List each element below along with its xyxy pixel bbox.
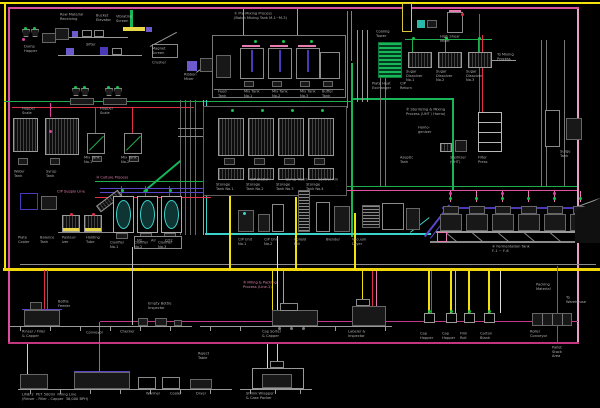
dump-hopper-1 (22, 29, 30, 37)
gray-filler-drop (132, 247, 133, 325)
pink-hopper-drop (455, 271, 456, 313)
purple-bank-pipe (442, 207, 590, 209)
fermentation-top (443, 206, 459, 214)
packer-hopper (270, 361, 284, 368)
storage-tank (248, 118, 274, 156)
premix-pump (300, 81, 310, 87)
equipment-label: Conveyor (86, 331, 103, 335)
equipment-label: Pasteur- izer (62, 236, 77, 244)
yellow-capper-drop (272, 271, 273, 311)
cip-unit-1 (238, 210, 254, 232)
equipment-label: Water Tank (14, 170, 25, 178)
clarifier-pump (116, 233, 128, 239)
utility-risers (367, 30, 368, 102)
hx-drop-2 (385, 78, 386, 186)
equipment-label: Plate Heat Exchanger (372, 82, 391, 90)
bank-platform (436, 231, 586, 233)
purple-roller (66, 48, 74, 55)
conveyor-item-1 (138, 318, 148, 326)
valve-dot (74, 86, 77, 89)
white-packer-drop (267, 344, 268, 370)
yellow-riser-2 (295, 197, 297, 270)
equipment-label: Cap Sorter & Capper (262, 330, 281, 338)
equipment-label: Reject Table (198, 352, 209, 360)
balance-tank (41, 196, 57, 210)
feeder-box-2 (55, 28, 69, 40)
utility-yellow-band (3, 268, 600, 271)
hx-drop-1 (380, 78, 381, 186)
conveyor-2-legs-b (335, 327, 336, 331)
cip-tank (272, 204, 284, 232)
scale-base-2 (103, 98, 127, 105)
yellow-screen (123, 27, 145, 31)
equipment-label: Dryer (196, 392, 206, 396)
equipment-label: Mix Tank No.1 (244, 90, 260, 98)
equipment-label: Cooling Tower (376, 30, 389, 38)
fermentation-tank (518, 214, 540, 231)
clarifier-vessel (161, 196, 182, 233)
filter-shelves (479, 142, 501, 143)
conveyor-3 (18, 389, 232, 390)
pasteurizer-base (63, 228, 79, 231)
filler-bowl (30, 302, 42, 310)
equipment-label: Colloid Mill (294, 238, 306, 246)
holding-base (85, 228, 101, 231)
equipment-label: To Warehouse (566, 296, 586, 304)
border-magenta-top (8, 7, 579, 9)
valve-dot (83, 86, 86, 89)
equipment-label: CIP Supply Line (57, 190, 85, 194)
dissolver-tank (408, 52, 432, 68)
equipment-label: High Shear Mixer (440, 35, 460, 43)
clarifier-oval (140, 200, 155, 229)
cap-hopper (424, 313, 435, 323)
equipment-label: Control Rm (318, 178, 338, 182)
right-riser-3 (564, 40, 565, 186)
equipment-label: ④ Fermentation Tank F-1 ~ F-6 (492, 245, 530, 253)
aseptic-tank (440, 143, 452, 152)
equipment-label: CIP Unit No.1 (238, 238, 252, 246)
valve-dot (461, 13, 464, 16)
valve-dot (70, 213, 73, 216)
valve-dot (449, 197, 452, 200)
fermentation-tank (544, 214, 566, 231)
green-thick-v1 (351, 63, 353, 237)
equipment-label: LINE-2 PET 500ml Filling Line (Rinser - … (22, 393, 88, 401)
premix-cap (298, 45, 316, 47)
premix-pump (272, 81, 282, 87)
fermentation-tank (466, 214, 488, 231)
feed-line-2 (58, 55, 142, 56)
clarifier-vessel (137, 196, 158, 233)
wheel (302, 327, 305, 330)
equipment-label: Syrup Room (286, 178, 308, 182)
conveyor-2-legs-a (210, 327, 211, 331)
stock-hopper (484, 313, 495, 323)
equipment-label: ⑤ Filling & Packing Process (Line-1) (243, 281, 277, 289)
white-stock-drop (500, 271, 501, 313)
feeder-box-1 (42, 33, 56, 43)
labeler-head (356, 299, 370, 306)
equipment-label: Sifter (86, 43, 96, 47)
valve-dot (501, 197, 504, 200)
red-filler-drop-1 (44, 270, 45, 312)
gray-risers (190, 100, 191, 235)
scale-hopper-1 (72, 88, 80, 96)
equipment-label: Warmer (146, 392, 160, 396)
pink-discharge-box (437, 232, 447, 242)
equipment-label: CIP Return (400, 82, 412, 90)
gray-tie-2 (178, 136, 204, 137)
purple-culture-line-1 (100, 188, 205, 189)
valve-dot (450, 310, 453, 313)
valve-dot (412, 37, 415, 40)
equipment-label: Mix Tank No.3 (300, 90, 316, 98)
dissolver-tank (438, 52, 462, 68)
equipment-label: Mix Tank No.2 (272, 90, 288, 98)
valve-dot (145, 189, 148, 192)
blender-drive (334, 206, 350, 232)
equipment-label: ① Pre-Mixing Process (Batch Mixing Tank … (234, 12, 287, 20)
yellow-line2-drop (27, 344, 28, 375)
dump-hopper-2 (31, 29, 39, 37)
right-risers (541, 40, 542, 186)
equipment-label: Pallet Stock Area (552, 346, 562, 358)
equipment-label: Hopper Scale (100, 107, 113, 115)
conveyor-3-legs (210, 390, 211, 394)
conveyor-2-legs-a (240, 327, 241, 331)
white-capper-drop (277, 236, 278, 311)
conveyor-1-legs (80, 327, 81, 331)
cooling-tower-fill (378, 42, 402, 78)
process-flow-diagram: Raw Material ReceivingBucket ElevatorVib… (0, 0, 600, 408)
scale-hopper-3 (105, 88, 113, 96)
filter-shelves (479, 122, 501, 123)
equipment-label: Filter Press (478, 156, 487, 164)
equipment-label: ③ Culture Process (96, 176, 128, 180)
valve-dot (478, 37, 481, 40)
valve-dot (488, 310, 491, 313)
mill-column (298, 190, 310, 232)
buffer-tank (320, 52, 340, 79)
green-dissolver-drops (412, 39, 413, 52)
valve-dot (428, 310, 431, 313)
equipment-label: Clarifier No.2 (134, 241, 148, 249)
equipment-label: Storage Tank No.4 (306, 183, 324, 191)
valve-dot (231, 109, 234, 112)
blender-tank (316, 202, 330, 232)
right-cabinet (566, 118, 582, 140)
equipment-label: Dump Hopper (24, 45, 37, 53)
premix-agitator (279, 50, 281, 72)
roller-dividers (552, 314, 553, 325)
storage-tank (218, 118, 244, 156)
clarifier-vessel (113, 196, 134, 233)
equipment-label: Buffer Tank (322, 90, 333, 98)
equipment-label: ② Sterilizing & Mixing Process (UHT / Ho… (406, 108, 445, 116)
equipment-label: Carton Blank (480, 332, 492, 340)
equipment-label: Mix Tank No.2 (121, 156, 137, 164)
premix-cap (270, 45, 288, 47)
magenta-mid-line (100, 321, 578, 322)
valve-dot (321, 109, 324, 112)
equipment-label: Labeler & Inspector (348, 330, 365, 338)
syrup-tank (45, 118, 79, 155)
equipment-label: CIP Station (250, 178, 270, 182)
fermentation-tank (492, 214, 514, 231)
wheel (290, 327, 293, 330)
dissolver-tank (468, 52, 492, 68)
pump-a (18, 158, 28, 165)
screen-box-2 (94, 30, 104, 37)
water-tank (13, 118, 38, 152)
conveyor-1-legs (50, 327, 51, 331)
valve-dot (501, 192, 504, 195)
stock-hopper (464, 313, 475, 323)
equipment-label: To Mixing Process (497, 53, 514, 61)
conveyor-1-legs (110, 327, 111, 331)
conveyor-item-2 (155, 318, 167, 326)
storage-tank (278, 118, 304, 156)
equipment-label: Ribbon Mixer (184, 73, 197, 81)
equipment-label: Vibrating Screen (116, 15, 132, 23)
conveyor-1-legs (170, 327, 171, 331)
premix-pump (244, 81, 254, 87)
equipment-label: Empty Bottle Inspector (148, 302, 171, 310)
valve-dot (553, 197, 556, 200)
equipment-label: Checker (120, 330, 135, 334)
gray-header-line (20, 264, 596, 265)
equipment-label: Cap Hopper (442, 332, 455, 340)
equipment-label: Feed Tank (218, 90, 227, 98)
magenta-line2-drop (99, 322, 100, 372)
green-thick-v2 (452, 100, 454, 190)
valve-dot (49, 130, 52, 133)
scale-base-1 (70, 98, 94, 105)
scale-hopper-4 (114, 88, 122, 96)
magenta-tank-drop (50, 103, 51, 117)
conveyor-4-legs (300, 390, 301, 394)
valve-dot (22, 38, 25, 41)
labeler-machine (352, 306, 386, 326)
pump-b (50, 158, 60, 165)
equipment-label: Rinser / Filler & Capper (22, 330, 45, 338)
purple-valve (146, 27, 152, 32)
border-magenta-left (8, 9, 10, 344)
teal-pump (417, 20, 425, 28)
equipment-label: Storage Tank No.1 (216, 183, 234, 191)
storage-cylinder (218, 168, 244, 180)
conveyor-item-3 (174, 320, 182, 326)
equipment-label: Mix Tank No.1 (84, 156, 100, 164)
equipment-label: Roller Conveyor (530, 330, 547, 338)
dryer-box (190, 379, 212, 389)
shear-mixer-cap (449, 10, 461, 12)
valve-dot (310, 40, 313, 43)
conveyor-2 (200, 326, 392, 327)
conveyor-1-legs (20, 327, 21, 331)
valve-dot (92, 213, 95, 216)
warmer-box (138, 377, 156, 389)
equipment-label: Packing Material (536, 283, 551, 291)
valve-dot (475, 197, 478, 200)
equipment-label: Crusher (152, 61, 166, 65)
gray-tie-1 (178, 128, 204, 129)
packer-body (262, 374, 292, 388)
equipment-label: Plate Cooler (18, 236, 30, 244)
valve-dot (107, 86, 110, 89)
cip-unit-2 (258, 214, 270, 232)
valve-dot (254, 40, 257, 43)
dryer-frame (382, 203, 404, 230)
valve-dot (527, 197, 530, 200)
valve-dot (579, 197, 582, 200)
yellow-hopper-drops-b (488, 271, 490, 313)
clarifier-oval (164, 200, 179, 229)
equipment-label: Balance Tank (40, 236, 54, 244)
valve-dot (291, 109, 294, 112)
equipment-label: Film Roll (460, 332, 467, 340)
valve-dot (261, 109, 264, 112)
equipment-label: Blender (326, 238, 340, 242)
fermentation-top (469, 206, 485, 214)
equipment-label: Sugar Dissolver No.1 (406, 70, 423, 82)
equipment-label: Magnet Screen (152, 47, 166, 55)
red-hopper-drop (431, 271, 432, 313)
conveyor-3-legs (120, 390, 121, 394)
capper-machine (272, 310, 318, 326)
premix-agitator (307, 50, 309, 72)
red-labeler-drop (372, 271, 373, 306)
equipment-label: Sugar Dissolver No.3 (466, 70, 483, 82)
border-magenta-bottom (8, 342, 579, 344)
equipment-label: Sterilizer (UHT) (450, 156, 466, 164)
conveyor-1 (10, 326, 192, 327)
screen-box-1 (82, 30, 92, 37)
filter-shelves (479, 132, 501, 133)
equipment-label: Sugar Dissolver No.2 (436, 70, 453, 82)
equipment-label: Cooler (170, 392, 182, 396)
equipment-label: Cap Hopper (420, 332, 433, 340)
equipment-label: Homo- genizer (418, 126, 431, 134)
fermentation-top (547, 206, 563, 214)
line2-machine-1 (20, 374, 48, 389)
purple-pump-1 (72, 31, 78, 37)
storage-tank (308, 118, 334, 156)
equipment-label: Syrup Tank (46, 170, 56, 178)
surge-tank (545, 110, 560, 147)
storage-pump (314, 158, 325, 165)
scale-hopper-2 (81, 88, 89, 96)
dryer-mixer (406, 208, 420, 230)
clarifier-oval (116, 200, 131, 229)
valve-dot (24, 27, 27, 30)
cap-hopper (446, 313, 457, 323)
storage-pump (284, 158, 295, 165)
yellow-hopper-drops-b (468, 271, 470, 313)
valve-dot (468, 310, 471, 313)
yellow-hopper-drops-a (450, 271, 452, 313)
storage-pump (254, 158, 265, 165)
valve-dot (169, 189, 172, 192)
cooler-box (162, 377, 180, 389)
equipment-label: Shrink Wrapper & Case Packer (246, 392, 274, 400)
gray-risers (185, 100, 186, 235)
border-yellow-left (4, 4, 6, 270)
ribbon-mixer (187, 61, 197, 71)
pink-labeler-drop (376, 271, 377, 306)
feed-tank (216, 55, 231, 78)
red-mixtank-drop-2 (132, 107, 133, 133)
red-mixtank-drop-1 (95, 107, 96, 133)
equipment-label: Clarifier No.1 (110, 241, 124, 249)
cap-sorter (280, 303, 298, 311)
red-filler-drop-2 (47, 270, 48, 312)
equipment-label: Holding Tube (86, 236, 100, 244)
screen-box-3 (112, 48, 122, 55)
cip-column (402, 3, 412, 32)
premix-cap (242, 45, 260, 47)
plate-cooler (20, 193, 38, 210)
green-culture-line (95, 181, 206, 182)
premix-agitator (251, 50, 253, 72)
sterilizer-unit (455, 140, 467, 152)
roller-dividers (562, 314, 563, 325)
magenta-riser-1 (347, 11, 348, 108)
valve-dot (116, 86, 119, 89)
conveyor-1-legs (140, 327, 141, 331)
conveyor-2-legs-b (385, 327, 386, 331)
equipment-label: CIP Unit No.2 (264, 238, 278, 246)
line2-machine-2 (74, 372, 130, 389)
equipment-label: Storage Tank No.2 (246, 183, 264, 191)
equipment-label: Raw Material Receiving (60, 13, 83, 21)
equipment-label: Hopper Scale (22, 107, 35, 115)
fermentation-top (495, 206, 511, 214)
fermentation-tank (440, 214, 462, 231)
utility-risers (362, 30, 363, 102)
pump-skid (427, 20, 437, 28)
equipment-label: Bucket Elevator (96, 14, 111, 22)
border-yellow-top (0, 2, 600, 4)
rinser-filler (24, 310, 60, 326)
conveyor-4-legs (275, 390, 276, 394)
valve-dot (282, 40, 285, 43)
valve-dot (121, 189, 124, 192)
valve-dot (33, 27, 36, 30)
magenta-riser-2 (351, 11, 352, 61)
dryer-fins (362, 205, 380, 228)
conveyor-3-legs (90, 390, 91, 394)
valve-dot (243, 212, 246, 215)
cyan-floor-line (205, 233, 431, 235)
roller-dividers (542, 314, 543, 325)
equipment-label: Aseptic Tank (400, 156, 413, 164)
equipment-label: Storage Tank No.3 (276, 183, 294, 191)
border-pink-right (577, 9, 579, 343)
equipment-label: Surge Tank (560, 150, 570, 158)
indigo-pump (100, 47, 108, 55)
red-right-drop (557, 266, 558, 342)
green-main-header (4, 101, 352, 102)
valve-dot (449, 192, 452, 195)
equipment-label: Air (151, 239, 156, 243)
fermentation-top (521, 206, 537, 214)
equipment-label: Bottle Feeder (58, 300, 70, 308)
buffer-pump (323, 81, 333, 87)
storage-pump (224, 158, 235, 165)
equipment-label: Clarifier No.3 (158, 241, 172, 249)
